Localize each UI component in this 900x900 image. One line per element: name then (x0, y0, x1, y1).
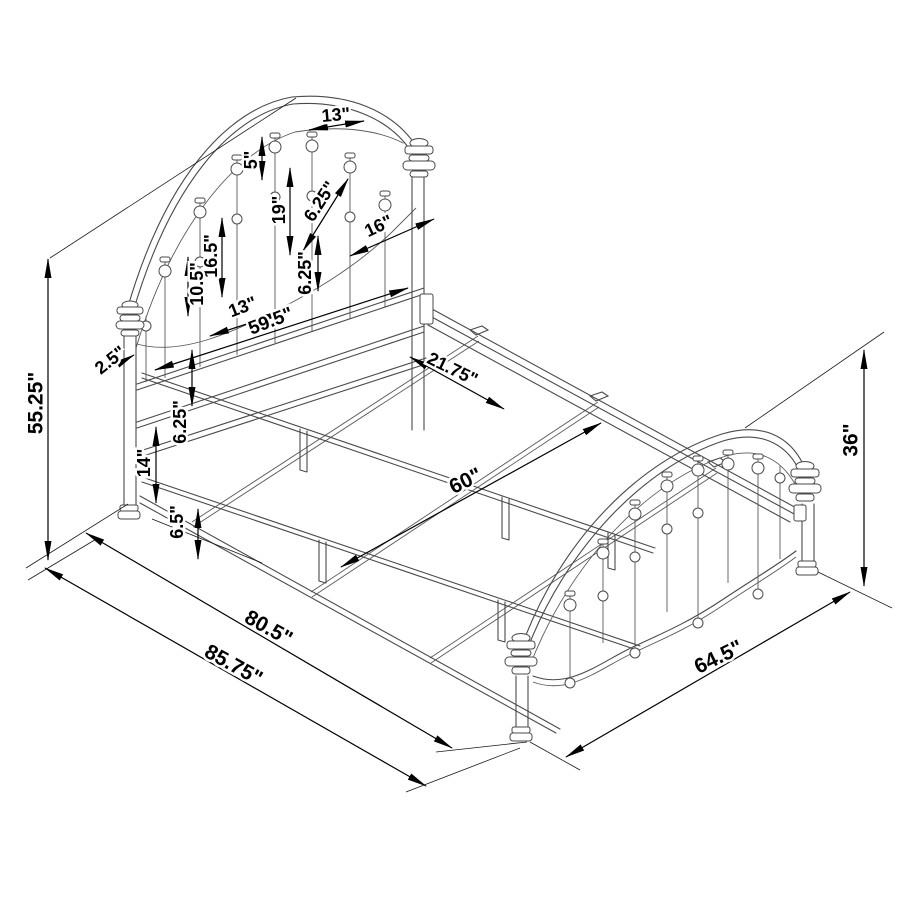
ext-footboard-floor (818, 572, 892, 608)
dimension-label-spindle-length-left: 10.5" (187, 262, 207, 306)
footboard (505, 430, 821, 741)
diagram-stage: 13"5"6.25"19"16"16.5"10.5"6.25"13"59.5"2… (0, 0, 900, 900)
footboard-rail-bracket (794, 505, 806, 521)
dimension-label-headboard-arch-spindle-spacing: 13" (321, 104, 351, 126)
dimension-label-overall-length: 85.75" (201, 640, 267, 690)
center-support-rails (142, 373, 655, 650)
footboard-near-post (505, 634, 537, 742)
far-rail-bracket (420, 294, 433, 324)
dimension-label-headboard-height: 55.25" (25, 372, 48, 435)
headboard-near-finial (116, 301, 144, 336)
dimension-label-rail-to-post-gap: 16" (361, 211, 395, 241)
dim-line-bed-width (341, 423, 601, 567)
headboard-far-finial (403, 139, 435, 178)
footboard-near-finial (505, 634, 537, 675)
dimension-label-footboard-width: 64.5" (691, 636, 747, 679)
dimension-label-side-rail-height: 14" (134, 449, 154, 478)
dimension-label-rail-ground-clearance: 6.5" (167, 505, 187, 539)
ext-footboard-near-foot (530, 742, 580, 770)
ext-footboard-peak (745, 332, 884, 428)
ext-headboard-floor (26, 504, 128, 568)
dimension-label-rail-band-gap: 6.25" (170, 400, 190, 444)
ext-headboard-peak (50, 98, 296, 258)
ext-overall-length-end (406, 748, 520, 792)
dimension-label-slat-spacing: 21.75" (424, 348, 481, 389)
dimension-labels: 13"5"6.25"19"16"16.5"10.5"6.25"13"59.5"2… (25, 104, 863, 691)
dimension-label-spindle-length-right: 19" (269, 196, 289, 225)
near-side-rail (140, 496, 560, 733)
footboard-near-foot (510, 727, 532, 741)
headboard-far-post (403, 139, 435, 431)
bed-frame-drawing (116, 96, 821, 741)
footboard-serpentine-rail (533, 551, 796, 680)
dimension-label-bed-length-inner: 80.5" (241, 606, 297, 651)
bed-dimension-diagram: 13"5"6.25"19"16"16.5"10.5"6.25"13"59.5"2… (0, 0, 900, 900)
headboard-near-post (116, 301, 144, 519)
footboard-far-foot (796, 561, 818, 575)
dimension-label-center-rail-gap: 6.25" (295, 251, 315, 295)
footboard-spindles (570, 452, 780, 678)
dimension-label-arch-tube-gap: 5" (241, 151, 261, 170)
headboard-spindle-balls (141, 132, 391, 331)
footboard-serpentine-rail-lower (533, 557, 796, 686)
footboard-spindle-balls (564, 450, 785, 688)
ext-overall-length-start (28, 538, 98, 580)
footboard-far-post (789, 462, 821, 576)
dimension-label-footboard-height: 36" (840, 423, 863, 456)
headboard-near-foot (118, 505, 140, 519)
